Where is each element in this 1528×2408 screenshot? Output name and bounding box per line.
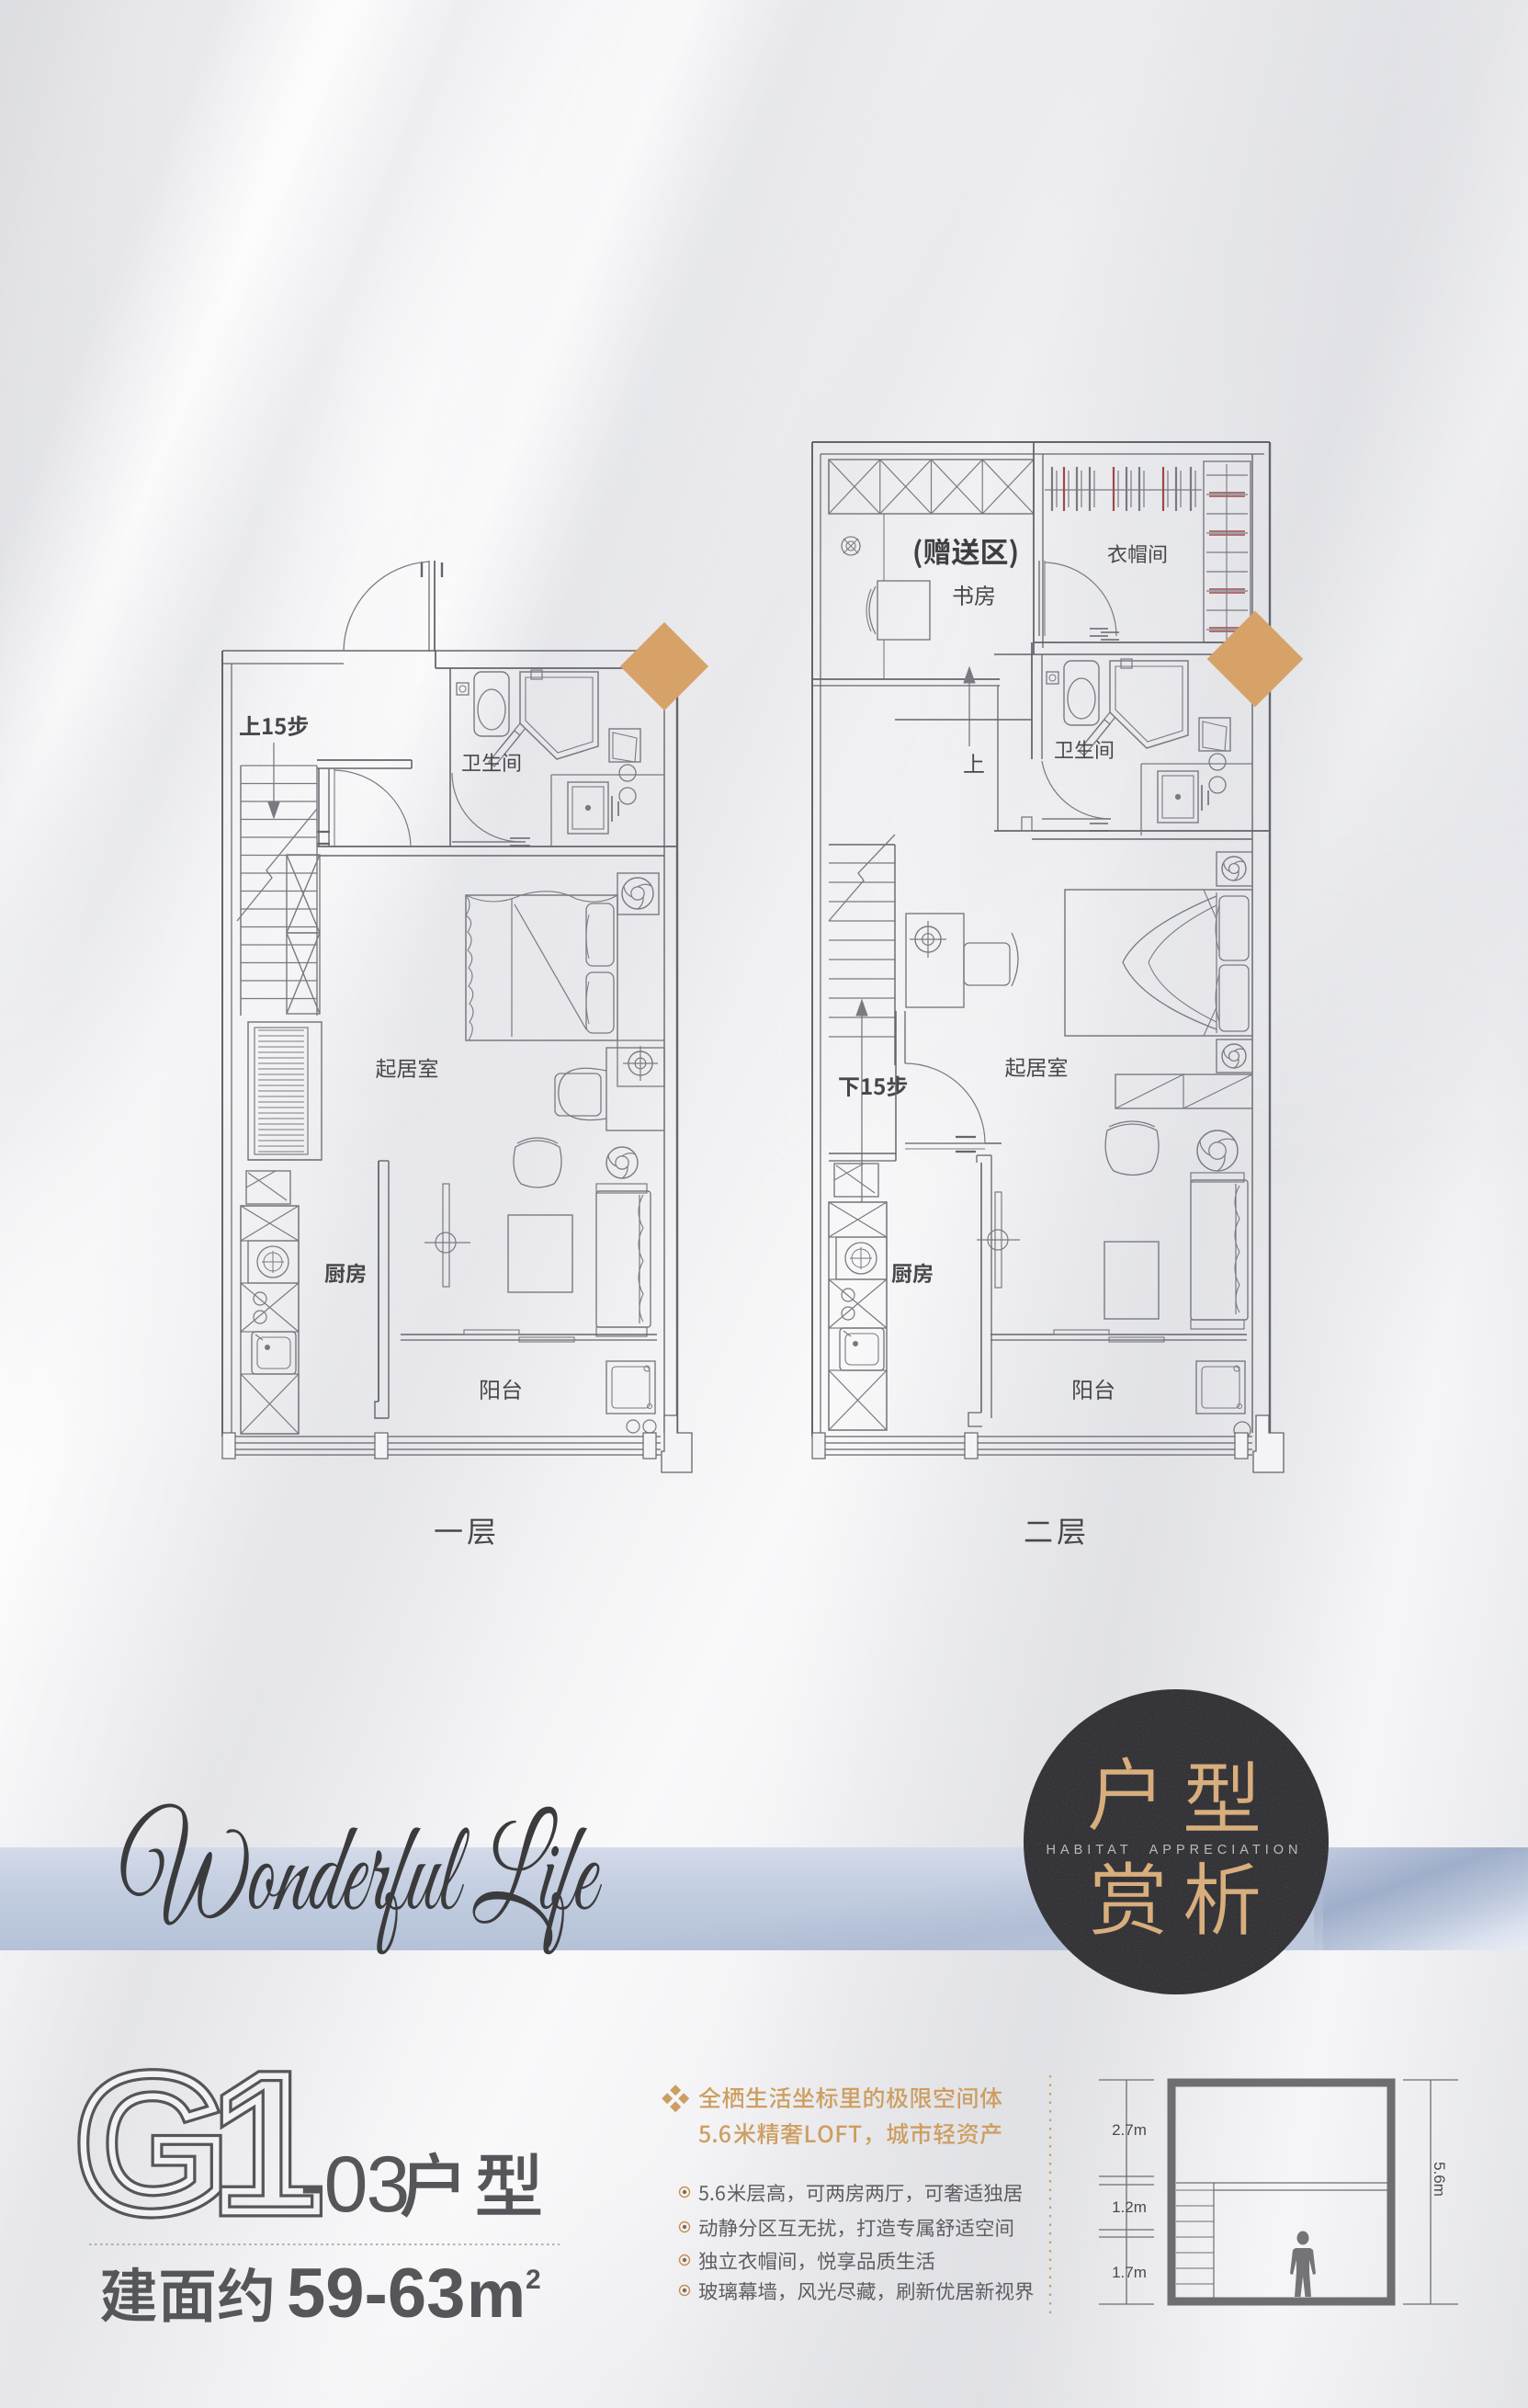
svg-text:-03: -03	[300, 2141, 408, 2229]
svg-text:G1: G1	[75, 2034, 317, 2254]
svg-text:HABITAT APPRECIATION: HABITAT APPRECIATION	[1046, 1843, 1302, 1857]
svg-text:5.6m: 5.6m	[1431, 2162, 1448, 2197]
svg-text:1.7m: 1.7m	[1112, 2264, 1147, 2281]
svg-text:m: m	[467, 2258, 526, 2332]
svg-text:1.2m: 1.2m	[1112, 2198, 1147, 2216]
svg-text:59-63: 59-63	[287, 2255, 465, 2333]
svg-text:2.7m: 2.7m	[1112, 2121, 1147, 2139]
svg-text:2: 2	[526, 2265, 541, 2295]
